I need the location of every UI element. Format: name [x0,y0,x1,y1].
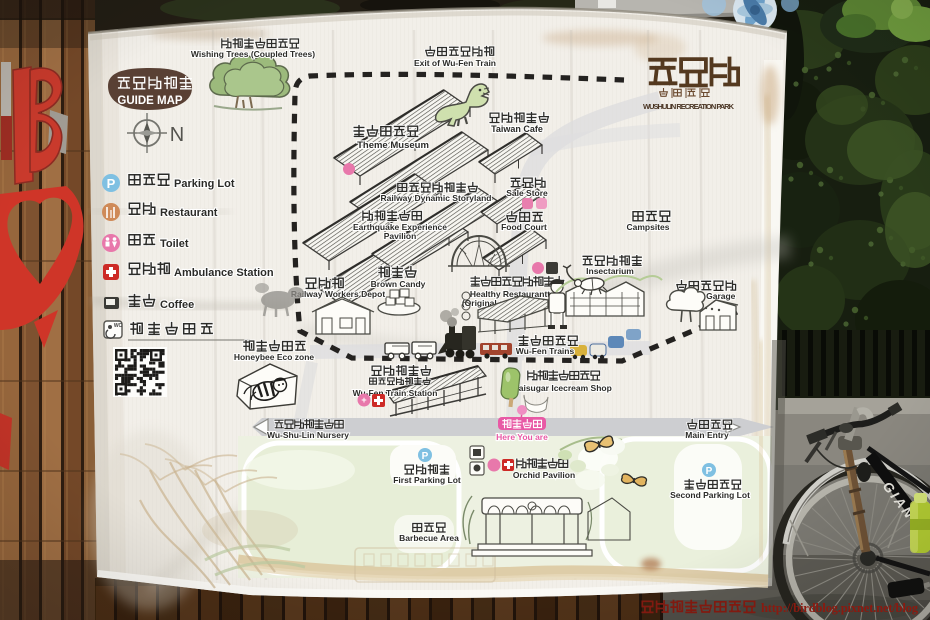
svg-text:http://birdblog.pixnet.net/blo: http://birdblog.pixnet.net/blog [761,601,919,615]
